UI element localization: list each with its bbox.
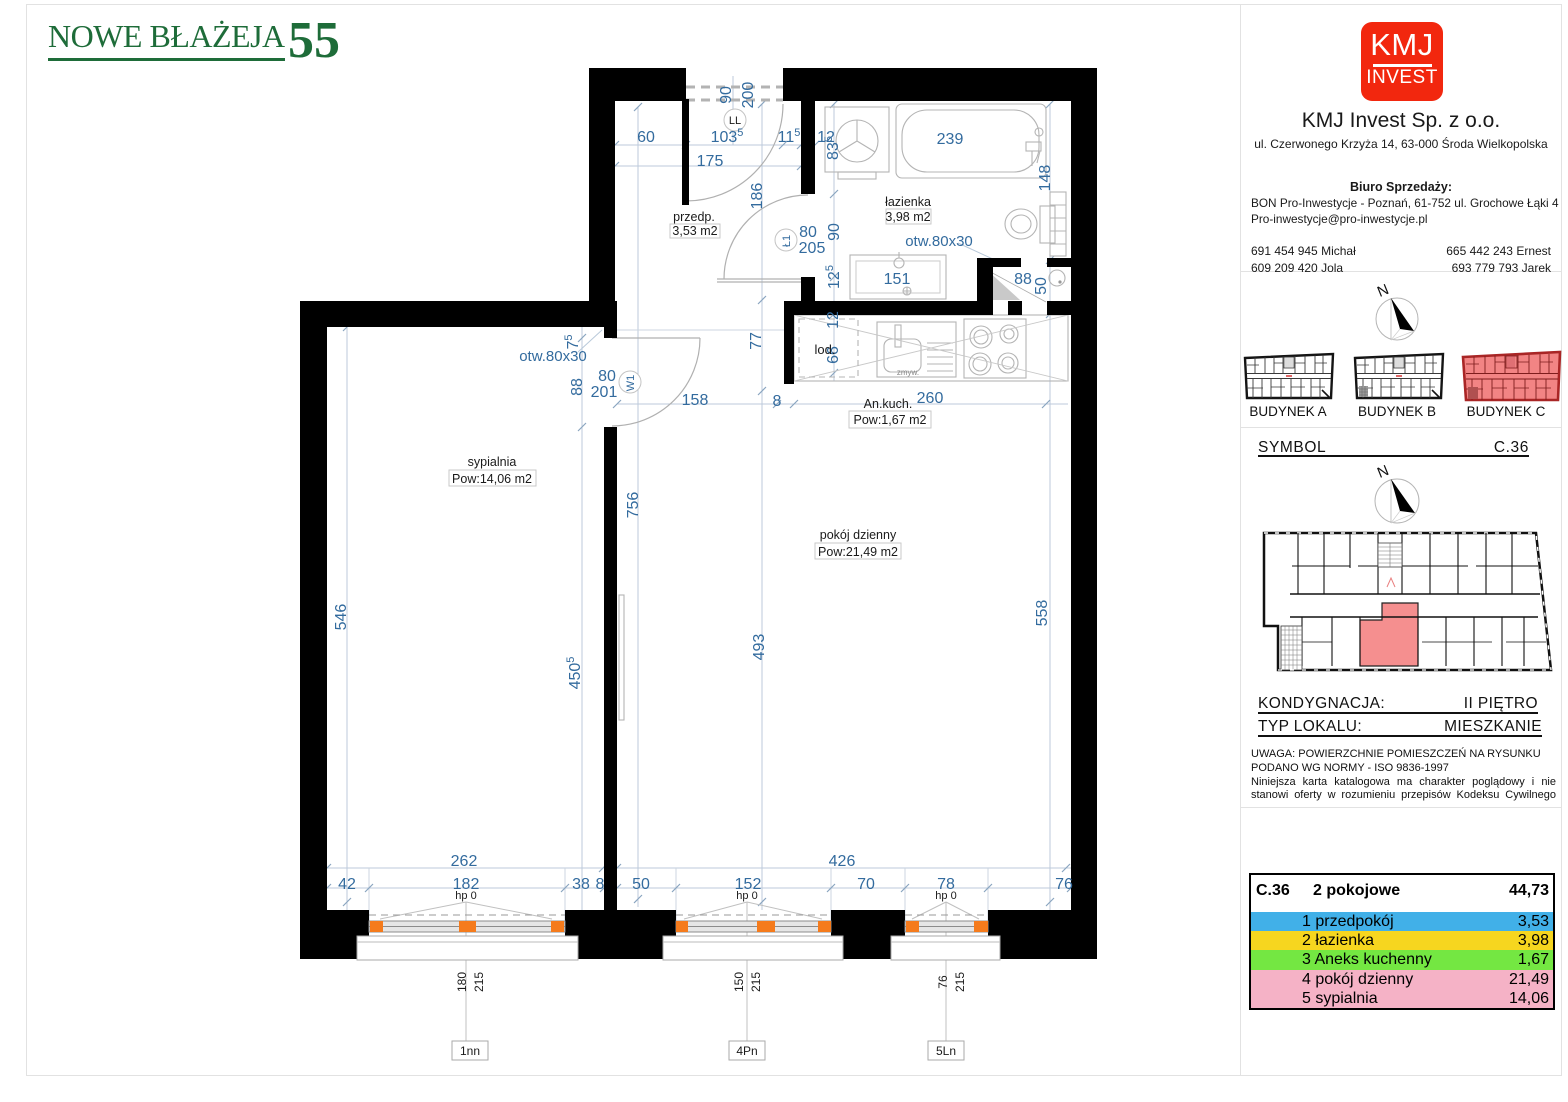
svg-text:50: 50 [632, 876, 650, 893]
svg-text:125: 125 [824, 265, 843, 289]
svg-text:4Pn: 4Pn [736, 1044, 757, 1058]
svg-text:42: 42 [338, 876, 356, 893]
svg-text:260: 260 [917, 390, 944, 407]
svg-text:148: 148 [1037, 165, 1054, 192]
svg-text:12: 12 [825, 311, 842, 329]
svg-text:558: 558 [1034, 600, 1051, 627]
svg-text:sypialnia: sypialnia [468, 455, 517, 469]
svg-text:Pow:1,67 m2: Pow:1,67 m2 [854, 413, 927, 427]
svg-text:pokój dzienny: pokój dzienny [820, 528, 897, 542]
svg-text:An.kuch.: An.kuch. [864, 397, 913, 411]
svg-text:262: 262 [451, 853, 478, 870]
svg-text:3,98 m2: 3,98 m2 [885, 210, 930, 224]
svg-text:Pow:21,49 m2: Pow:21,49 m2 [818, 545, 898, 559]
svg-text:5Ln: 5Ln [936, 1044, 956, 1058]
svg-text:115: 115 [778, 127, 801, 146]
svg-text:175: 175 [697, 153, 724, 170]
svg-text:W1: W1 [625, 375, 637, 392]
svg-text:186: 186 [749, 183, 766, 210]
svg-text:215: 215 [749, 972, 763, 992]
svg-text:8: 8 [773, 393, 782, 410]
svg-text:546: 546 [333, 604, 350, 631]
svg-text:75: 75 [563, 334, 582, 349]
svg-text:215: 215 [472, 972, 486, 992]
svg-text:150: 150 [732, 972, 746, 992]
svg-text:239: 239 [937, 131, 964, 148]
svg-text:77: 77 [748, 332, 765, 350]
svg-text:1035: 1035 [711, 127, 744, 146]
svg-text:60: 60 [637, 129, 655, 146]
svg-text:1nn: 1nn [460, 1044, 480, 1058]
svg-text:80: 80 [799, 224, 817, 241]
svg-text:76: 76 [1055, 876, 1073, 893]
svg-text:38: 38 [572, 876, 590, 893]
svg-text:80: 80 [598, 368, 616, 385]
svg-text:158: 158 [682, 392, 709, 409]
svg-text:hp 0: hp 0 [736, 890, 757, 902]
svg-text:88: 88 [1014, 271, 1032, 288]
svg-text:Ł1: Ł1 [781, 235, 793, 247]
svg-text:4505: 4505 [565, 657, 584, 690]
svg-text:70: 70 [857, 876, 875, 893]
svg-text:N: N [1375, 281, 1391, 301]
svg-text:180: 180 [455, 972, 469, 992]
svg-text:LL: LL [729, 115, 741, 127]
svg-text:215: 215 [953, 972, 967, 992]
svg-text:201: 201 [591, 384, 618, 401]
svg-text:756: 756 [625, 492, 642, 519]
svg-text:zmyw.: zmyw. [897, 368, 919, 377]
svg-text:łazienka: łazienka [885, 195, 931, 209]
svg-text:200: 200 [740, 82, 757, 109]
svg-text:88: 88 [569, 378, 586, 396]
svg-text:50: 50 [1033, 277, 1050, 295]
svg-text:hp 0: hp 0 [455, 890, 476, 902]
svg-text:76: 76 [936, 975, 950, 989]
svg-text:151: 151 [884, 271, 911, 288]
svg-text:835: 835 [823, 136, 842, 160]
svg-text:hp 0: hp 0 [935, 890, 956, 902]
svg-text:205: 205 [799, 240, 826, 257]
svg-text:3,53 m2: 3,53 m2 [672, 224, 717, 238]
svg-text:493: 493 [751, 634, 768, 661]
svg-text:otw.80x30: otw.80x30 [905, 233, 973, 250]
svg-text:90: 90 [826, 223, 843, 241]
svg-text:lod.: lod. [815, 342, 836, 357]
svg-text:Pow:14,06 m2: Pow:14,06 m2 [452, 472, 532, 486]
svg-text:426: 426 [829, 853, 856, 870]
svg-text:N: N [1375, 462, 1391, 482]
svg-text:otw.80x30: otw.80x30 [519, 348, 587, 365]
svg-text:90: 90 [718, 86, 735, 104]
svg-text:8: 8 [596, 876, 605, 893]
svg-text:przedp.: przedp. [673, 210, 715, 224]
